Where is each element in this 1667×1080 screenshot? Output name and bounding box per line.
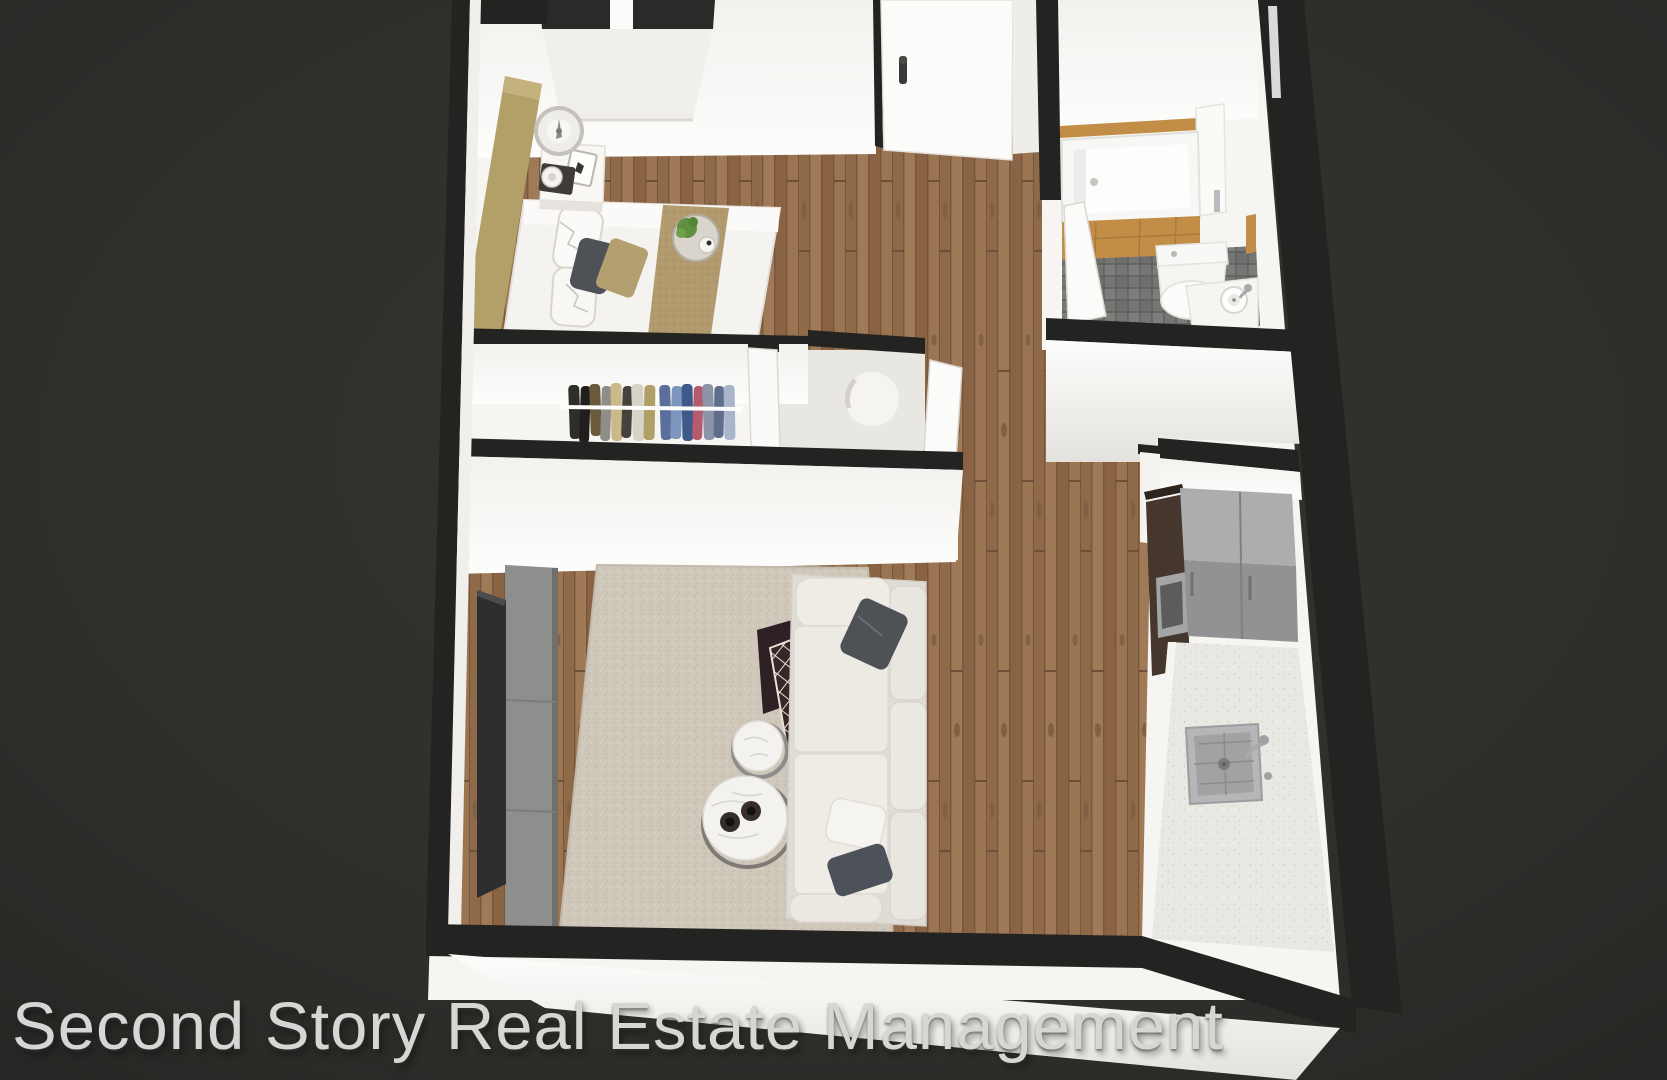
table-lamp — [534, 106, 584, 156]
media-console — [505, 565, 558, 938]
microwave-window — [1160, 581, 1183, 629]
sofa-arm-bottom — [790, 894, 882, 922]
apartment — [426, 0, 1402, 1080]
floor-plan-render — [0, 0, 1667, 1080]
bathroom-north-wall-face — [1058, 0, 1258, 132]
tv — [477, 590, 506, 898]
hanging-clothes-left — [568, 383, 655, 443]
entry — [873, 0, 1040, 160]
sofa-back-cushion — [890, 812, 926, 920]
door-jamb-face — [1013, 0, 1040, 154]
refrigerator-top — [1180, 488, 1296, 566]
door-handle-knob — [899, 56, 907, 64]
media-console-edge — [552, 568, 558, 938]
shower-fixture — [1214, 190, 1220, 212]
living-north-wall-face — [452, 456, 963, 574]
clothes-rod — [563, 407, 739, 409]
tub-drain — [1090, 178, 1098, 186]
floor-plan-scene: Second Story Real Estate Management — [0, 0, 1667, 1080]
window-mullion — [610, 0, 633, 29]
entry-hall-floor — [876, 133, 1042, 354]
bathroom-west-wall-top — [1036, 0, 1061, 200]
sofa — [786, 574, 926, 926]
window-recess — [542, 27, 713, 120]
bed-tray — [673, 215, 719, 261]
kitchen-sink — [1186, 724, 1272, 804]
north-wall-top-left — [470, 0, 549, 24]
coffee-table-small — [733, 721, 787, 777]
living-room — [452, 438, 963, 938]
sofa-back-cushion — [890, 702, 926, 810]
closet-divider-wall — [748, 348, 780, 448]
